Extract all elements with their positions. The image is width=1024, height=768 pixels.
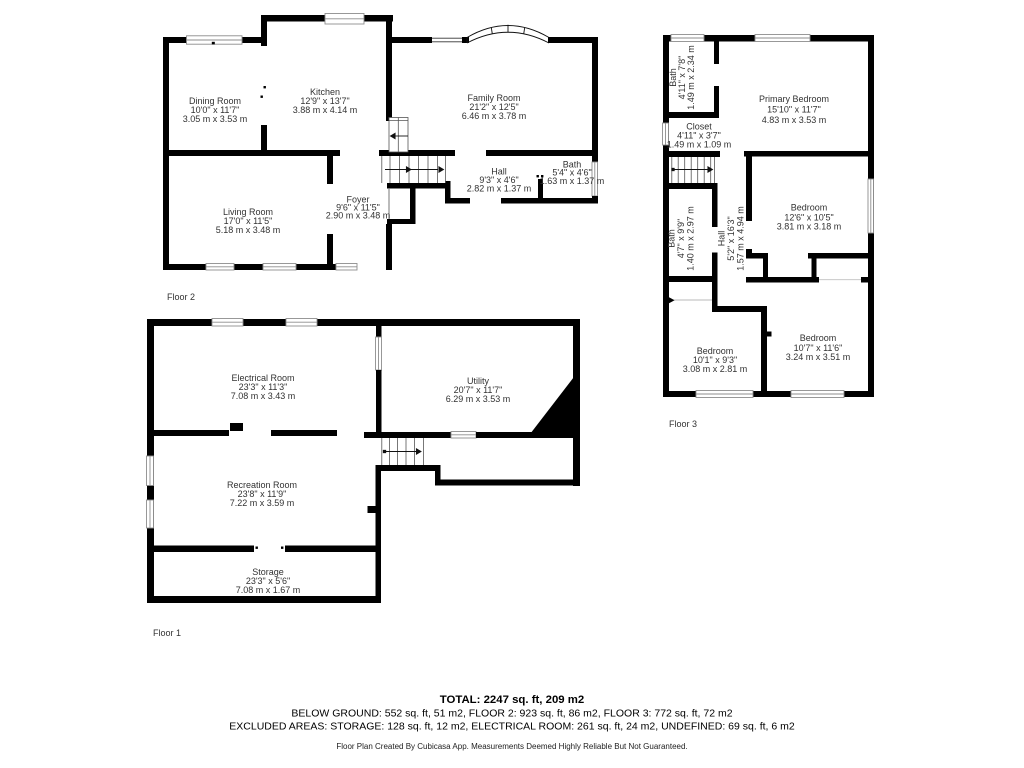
svg-text:EXCLUDED AREAS: STORAGE: 128 s: EXCLUDED AREAS: STORAGE: 128 sq. ft, 12 … xyxy=(229,721,795,733)
svg-text:4'7" x 9'9": 4'7" x 9'9" xyxy=(676,219,686,258)
svg-text:5.18 m x 3.48 m: 5.18 m x 3.48 m xyxy=(216,225,281,235)
svg-text:1.63 m x 1.37 m: 1.63 m x 1.37 m xyxy=(540,176,605,186)
svg-text:2.82 m x 1.37 m: 2.82 m x 1.37 m xyxy=(467,184,532,194)
svg-text:BELOW GROUND: 552 sq. ft, 51 m: BELOW GROUND: 552 sq. ft, 51 m2, FLOOR 2… xyxy=(291,708,732,720)
svg-text:1.49 m x 2.34 m: 1.49 m x 2.34 m xyxy=(686,45,696,110)
svg-text:3.24 m x 3.51 m: 3.24 m x 3.51 m xyxy=(786,352,851,362)
svg-text:4.83 m x 3.53 m: 4.83 m x 3.53 m xyxy=(762,115,827,125)
svg-text:15'10" x 11'7": 15'10" x 11'7" xyxy=(767,105,821,115)
svg-text:1.49 m x 1.09 m: 1.49 m x 1.09 m xyxy=(667,140,732,150)
svg-text:6.46 m x 3.78 m: 6.46 m x 3.78 m xyxy=(462,111,527,121)
svg-text:Primary Bedroom: Primary Bedroom xyxy=(759,94,829,104)
svg-text:1.57 m x 4.94 m: 1.57 m x 4.94 m xyxy=(735,206,745,271)
svg-text:Floor 2: Floor 2 xyxy=(167,292,195,302)
svg-text:3.08 m x 2.81 m: 3.08 m x 2.81 m xyxy=(683,364,748,374)
svg-text:2.90 m x 3.48 m: 2.90 m x 3.48 m xyxy=(326,211,391,221)
svg-text:1.40 m x 2.97 m: 1.40 m x 2.97 m xyxy=(685,206,695,271)
svg-text:Floor 3: Floor 3 xyxy=(669,419,697,429)
svg-text:3.88 m x 4.14 m: 3.88 m x 4.14 m xyxy=(293,105,358,115)
svg-text:Floor Plan Created By Cubicasa: Floor Plan Created By Cubicasa App. Meas… xyxy=(336,742,687,751)
svg-text:Bedroom: Bedroom xyxy=(800,333,837,343)
svg-text:Bath: Bath xyxy=(666,229,676,248)
svg-text:6.29 m x 3.53 m: 6.29 m x 3.53 m xyxy=(446,394,511,404)
svg-text:7.22 m x 3.59 m: 7.22 m x 3.59 m xyxy=(230,498,295,508)
svg-text:7.08 m x 1.67 m: 7.08 m x 1.67 m xyxy=(236,585,301,595)
svg-text:TOTAL: 2247 sq. ft, 209 m2: TOTAL: 2247 sq. ft, 209 m2 xyxy=(440,694,585,706)
svg-text:3.81 m x 3.18 m: 3.81 m x 3.18 m xyxy=(777,222,842,232)
svg-text:7.08 m x 3.43 m: 7.08 m x 3.43 m xyxy=(231,391,296,401)
svg-text:5'2" x 16'3": 5'2" x 16'3" xyxy=(726,216,736,260)
svg-text:Floor 1: Floor 1 xyxy=(153,628,181,638)
svg-text:3.05 m x 3.53 m: 3.05 m x 3.53 m xyxy=(183,114,248,124)
svg-text:Hall: Hall xyxy=(716,231,726,247)
svg-text:Bedroom: Bedroom xyxy=(791,203,828,213)
